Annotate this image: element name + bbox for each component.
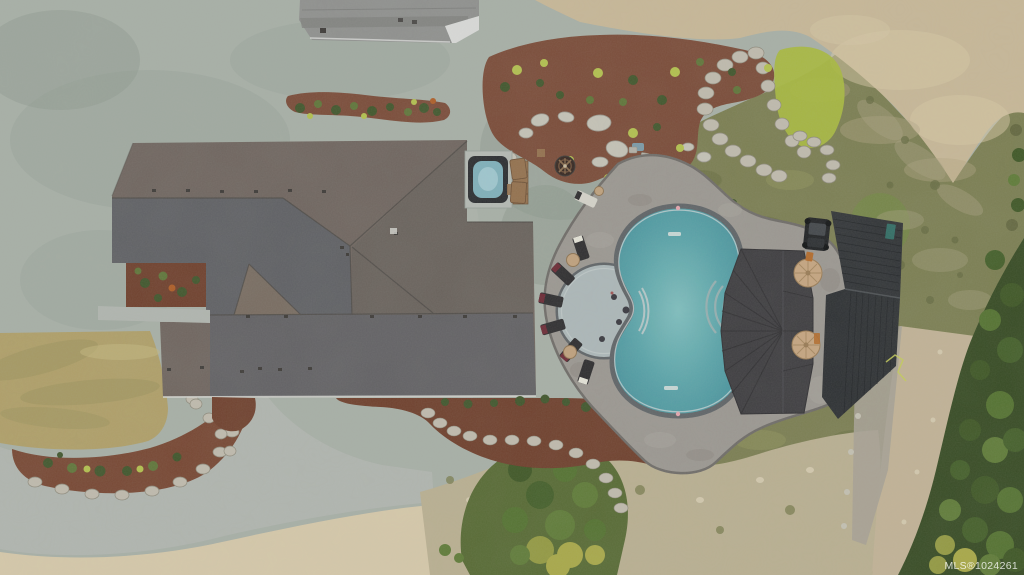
aerial-photo-canvas: MLS®1024261: [0, 0, 1024, 575]
mls-watermark: MLS®1024261: [944, 560, 1018, 572]
aerial-photo: MLS®1024261: [0, 0, 1024, 575]
photo-blotch: [0, 0, 1024, 575]
